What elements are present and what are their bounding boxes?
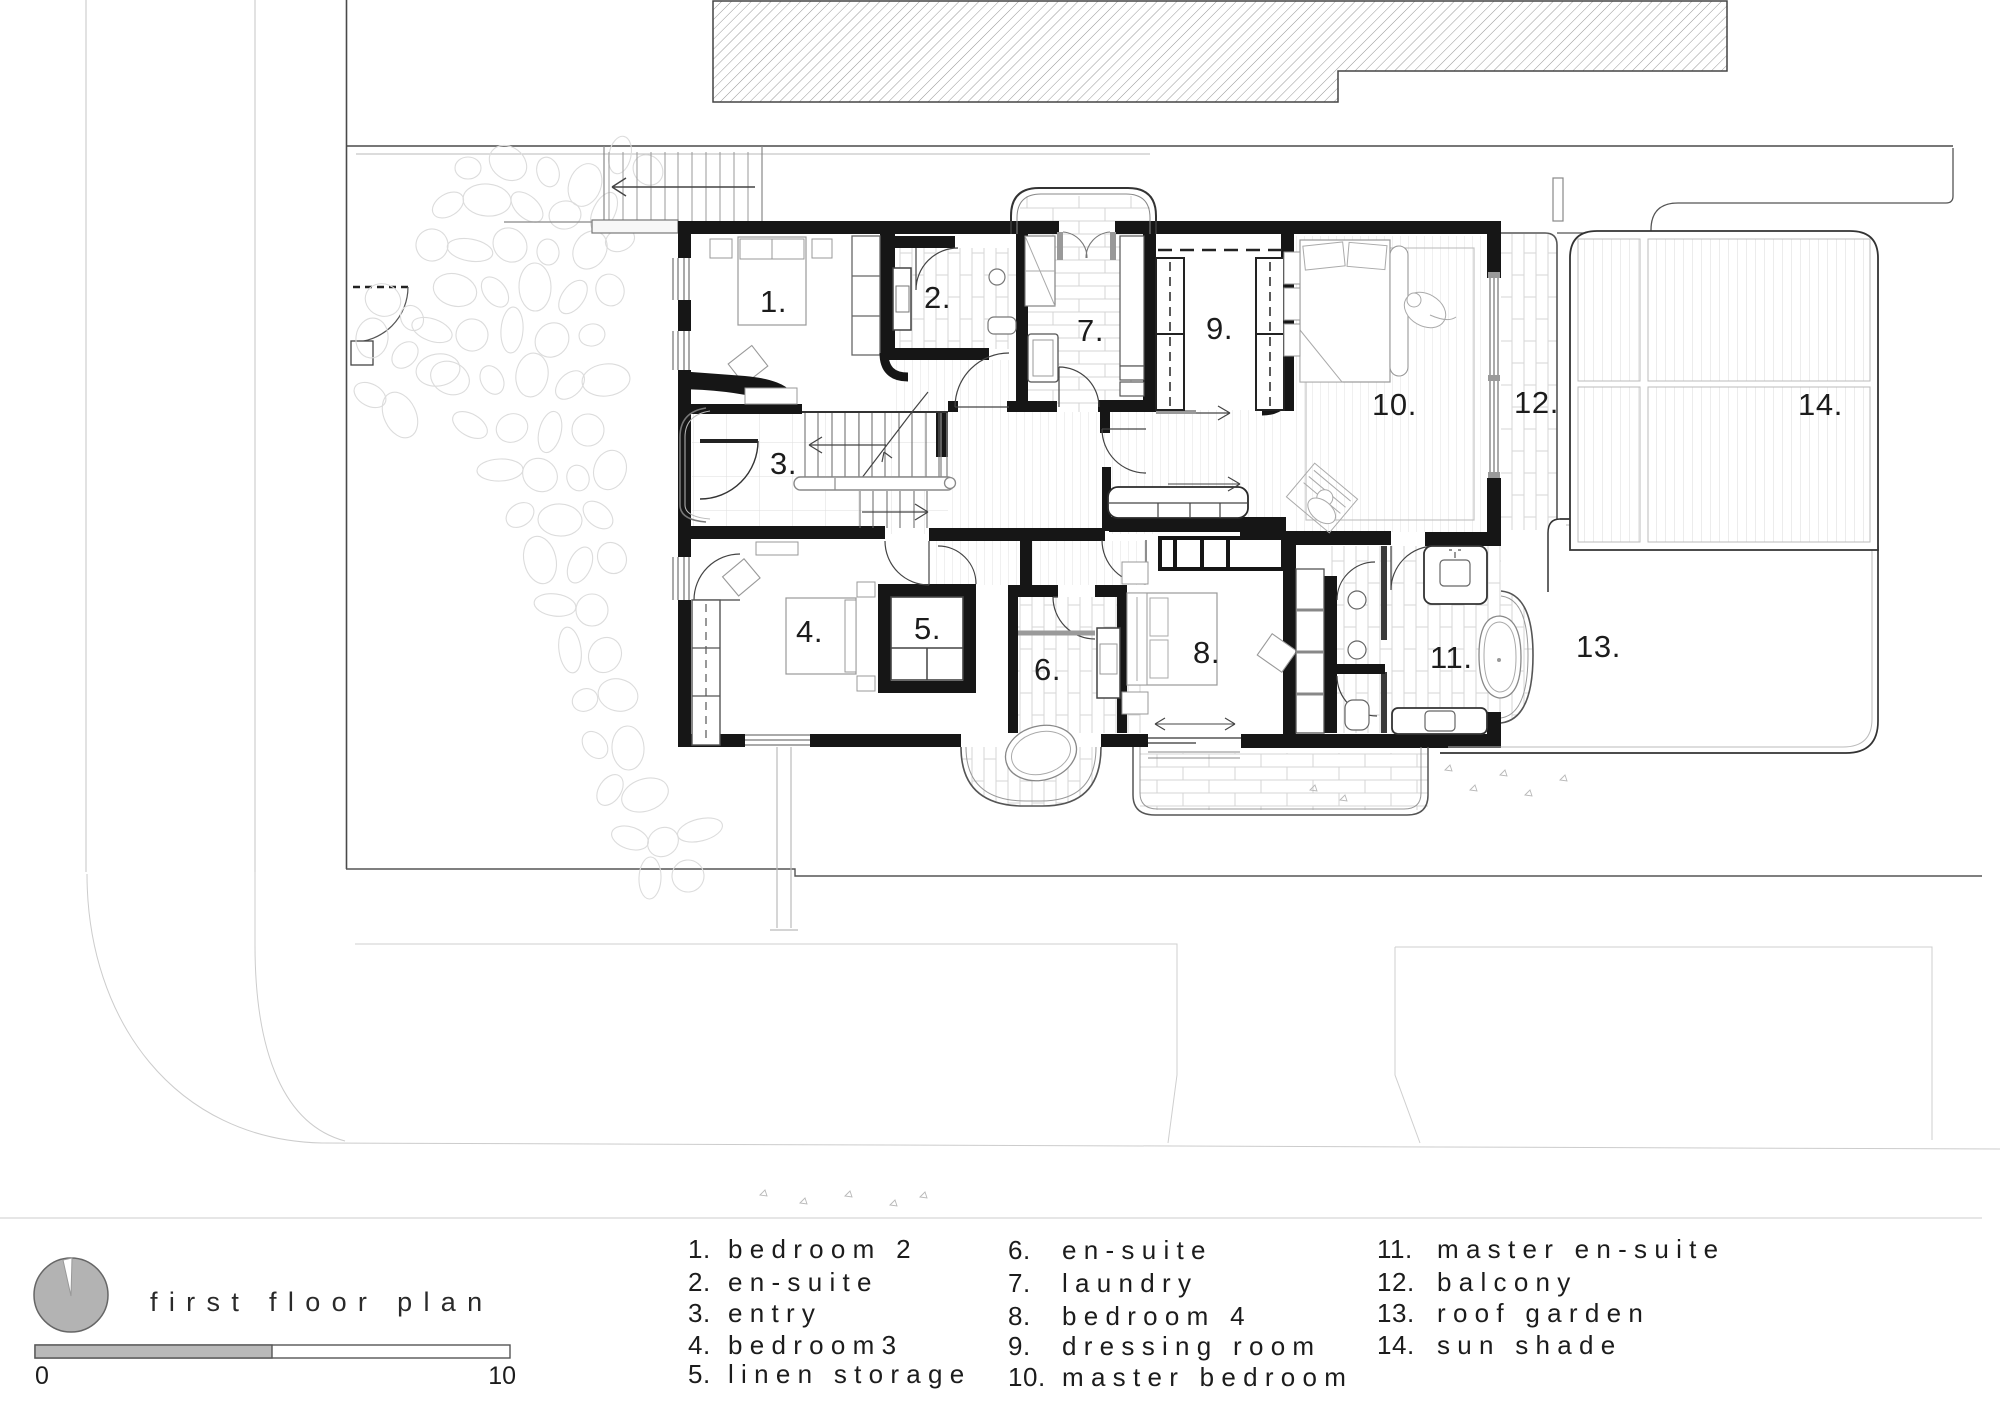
svg-text:10: 10 [488,1362,516,1390]
svg-text:2.: 2. [688,1267,711,1297]
svg-text:7.: 7. [1077,313,1104,348]
svg-text:14.: 14. [1377,1330,1415,1360]
svg-text:master en-suite: master en-suite [1437,1234,1725,1264]
svg-text:en-suite: en-suite [1062,1235,1213,1265]
svg-text:1.: 1. [688,1234,711,1264]
svg-text:13.: 13. [1576,629,1621,664]
svg-text:roof garden: roof garden [1437,1298,1650,1328]
svg-text:first floor plan: first floor plan [150,1287,494,1317]
svg-text:linen storage: linen storage [728,1359,972,1389]
svg-text:sun shade: sun shade [1437,1330,1623,1360]
svg-text:entry: entry [728,1298,822,1328]
svg-text:6.: 6. [1034,652,1061,687]
svg-text:14.: 14. [1798,387,1843,422]
svg-text:6.: 6. [1008,1235,1031,1265]
svg-text:10.: 10. [1008,1362,1046,1392]
svg-text:dressing room: dressing room [1062,1331,1321,1361]
svg-text:11.: 11. [1377,1234,1413,1264]
svg-text:bedroom 4: bedroom 4 [1062,1301,1252,1331]
svg-text:11.: 11. [1430,640,1473,675]
svg-text:master bedroom: master bedroom [1062,1362,1353,1392]
svg-text:8.: 8. [1008,1301,1031,1331]
svg-text:2.: 2. [924,280,951,315]
svg-text:13.: 13. [1377,1298,1415,1328]
svg-text:1.: 1. [760,284,787,319]
svg-text:bedroom 2: bedroom 2 [728,1234,918,1264]
svg-text:10.: 10. [1372,387,1417,422]
svg-text:3.: 3. [688,1298,711,1328]
svg-text:9.: 9. [1008,1331,1031,1361]
svg-text:8.: 8. [1193,635,1220,670]
svg-text:5.: 5. [914,611,941,646]
svg-text:5.: 5. [688,1359,711,1389]
svg-text:12.: 12. [1514,385,1559,420]
svg-text:4.: 4. [796,614,823,649]
svg-text:4.: 4. [688,1330,711,1360]
svg-text:en-suite: en-suite [728,1267,879,1297]
svg-text:balcony: balcony [1437,1267,1578,1297]
svg-text:laundry: laundry [1062,1268,1198,1298]
svg-text:0: 0 [35,1362,49,1390]
svg-text:7.: 7. [1008,1268,1031,1298]
svg-text:bedroom3: bedroom3 [728,1330,903,1360]
svg-text:9.: 9. [1206,311,1233,346]
svg-text:3.: 3. [770,446,797,481]
svg-text:12.: 12. [1377,1267,1415,1297]
